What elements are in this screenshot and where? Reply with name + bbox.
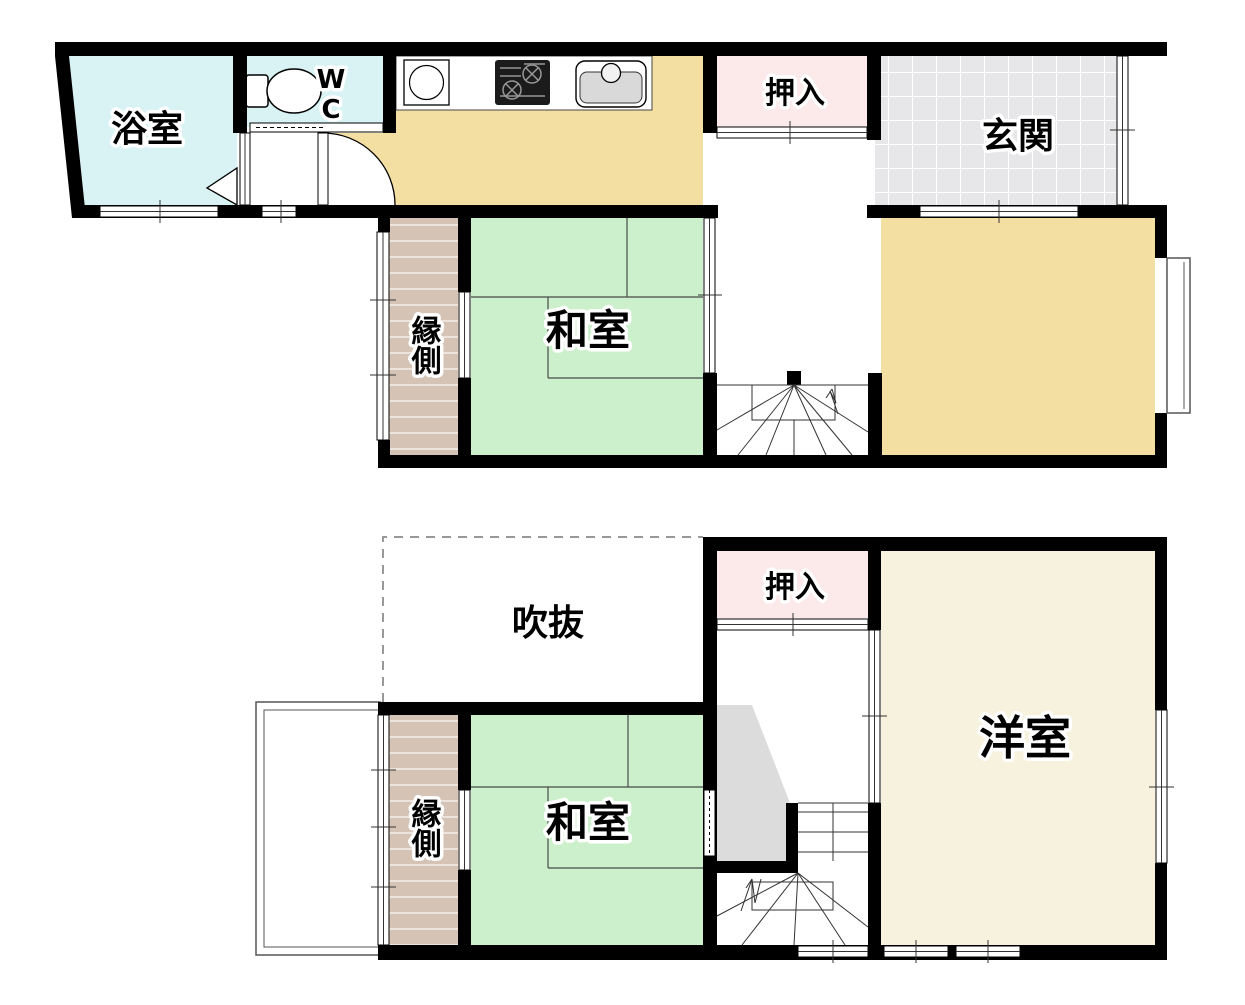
entrance-label: 玄関 bbox=[982, 116, 1054, 157]
washer-icon bbox=[404, 60, 449, 105]
bay-window bbox=[1167, 258, 1190, 413]
western-room-label: 洋室 bbox=[979, 711, 1071, 765]
stair-newel-1f bbox=[787, 371, 801, 385]
stairs-2f-arrow bbox=[741, 879, 761, 911]
closet-2f-label: 押入 bbox=[765, 570, 825, 605]
stair-shadow-area bbox=[717, 705, 790, 861]
wc-label-top: W bbox=[317, 65, 346, 95]
toilet-icon bbox=[246, 69, 321, 113]
wc-sliding-door bbox=[250, 123, 383, 132]
stairs-1f bbox=[717, 385, 868, 455]
floorplan-page: 浴室 W C 押入 玄関 縁側 和室 bbox=[0, 0, 1245, 1005]
void-label: 吹抜 bbox=[512, 603, 584, 644]
floor2-plan: 吹抜 押入 洋室 縁側 和室 bbox=[256, 537, 1174, 963]
veranda-washitsu-door-1f bbox=[459, 292, 470, 378]
washitsu-1f-label: 和室 bbox=[546, 306, 630, 355]
wc-label-bottom: C bbox=[321, 95, 340, 125]
washitsu-2f-label: 和室 bbox=[546, 798, 630, 847]
floor1-plan: 浴室 W C 押入 玄関 縁側 和室 bbox=[55, 42, 1190, 468]
room-dining-1f bbox=[881, 218, 1155, 455]
washroom-window bbox=[262, 200, 296, 223]
closet-1f-label: 押入 bbox=[765, 76, 825, 111]
bathroom-label: 浴室 bbox=[111, 109, 183, 150]
kitchen-door-leaf bbox=[318, 133, 328, 205]
stove-icon bbox=[495, 60, 550, 105]
veranda-1f-label: 縁側 bbox=[406, 315, 443, 375]
washitsu-2f-stair-door bbox=[704, 790, 715, 856]
veranda-washitsu-door-2f bbox=[459, 790, 470, 870]
balcony-2f bbox=[256, 702, 380, 955]
sink-icon bbox=[576, 61, 646, 107]
veranda-2f-label: 縁側 bbox=[406, 798, 443, 858]
washroom-door bbox=[240, 133, 250, 205]
floorplan-drawing: 浴室 W C 押入 玄関 縁側 和室 bbox=[0, 0, 1245, 1005]
